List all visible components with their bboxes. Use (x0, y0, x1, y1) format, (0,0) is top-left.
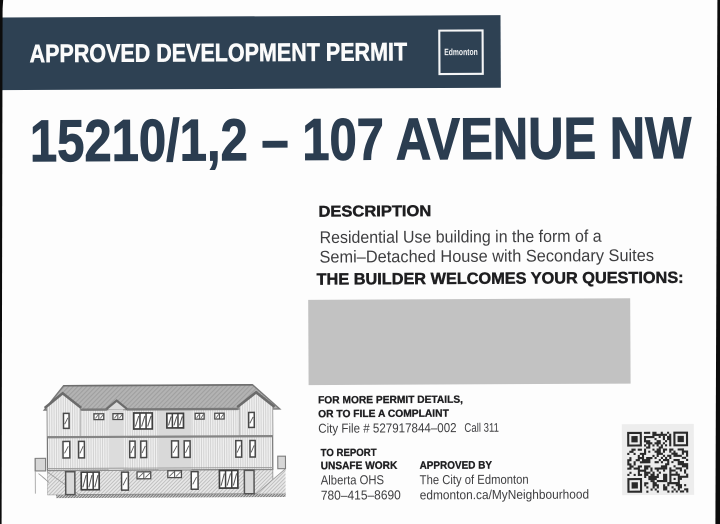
svg-text:Edmonton: Edmonton (444, 47, 478, 57)
svg-text:THE BUILDER WELCOMES YOUR QUES: THE BUILDER WELCOMES YOUR QUESTIONS: (317, 269, 684, 289)
svg-text:Alberta OHS: Alberta OHS (321, 472, 385, 487)
svg-text:APPROVED BY: APPROVED BY (420, 460, 493, 472)
svg-text:TO REPORT: TO REPORT (321, 448, 378, 459)
svg-text:Semi–Detached House with Secon: Semi–Detached House with Secondary Suite… (319, 246, 654, 267)
svg-text:APPROVED DEVELOPMENT PERMIT: APPROVED DEVELOPMENT PERMIT (30, 38, 408, 68)
svg-text:UNSAFE WORK: UNSAFE WORK (321, 460, 398, 472)
svg-text:OR TO FILE A COMPLAINT: OR TO FILE A COMPLAINT (318, 409, 449, 421)
svg-text:780–415–8690: 780–415–8690 (321, 487, 401, 502)
svg-text:The City of Edmonton: The City of Edmonton (420, 472, 529, 488)
svg-text:FOR MORE PERMIT DETAILS,: FOR MORE PERMIT DETAILS, (318, 395, 463, 407)
svg-text:15210/1,2 – 107 AVENUE NW: 15210/1,2 – 107 AVENUE NW (30, 105, 692, 174)
svg-text:Residential Use building in th: Residential Use building in the form of … (320, 227, 603, 247)
svg-text:DESCRIPTION: DESCRIPTION (318, 203, 431, 221)
svg-text:Call 311: Call 311 (464, 421, 499, 435)
svg-text:City File # 527917844–002: City File # 527917844–002 (318, 420, 456, 436)
svg-text:edmonton.ca/MyNeighbourhood: edmonton.ca/MyNeighbourhood (420, 487, 589, 503)
